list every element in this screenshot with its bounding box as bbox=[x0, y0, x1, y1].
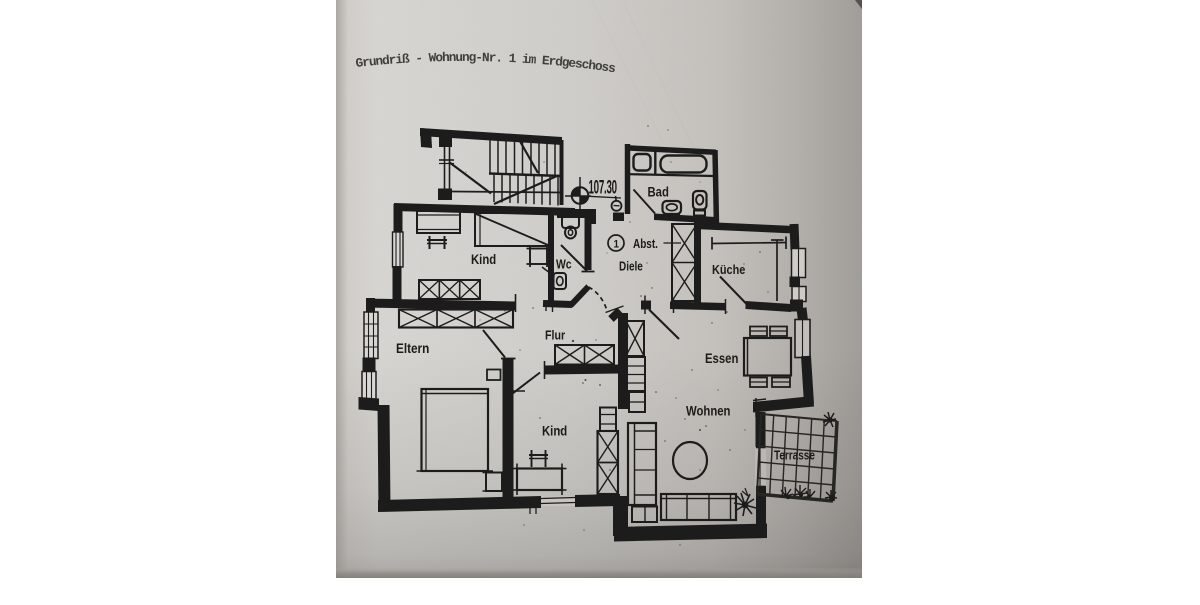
svg-text:Wc: Wc bbox=[556, 257, 572, 271]
svg-text:Eltern: Eltern bbox=[396, 340, 429, 356]
svg-text:Essen: Essen bbox=[705, 351, 738, 366]
svg-text:107.30: 107.30 bbox=[589, 177, 617, 199]
svg-text:Kind: Kind bbox=[471, 252, 496, 267]
svg-text:Terrasse: Terrasse bbox=[774, 450, 815, 463]
svg-text:Bad: Bad bbox=[648, 185, 669, 200]
svg-text:Abst.: Abst. bbox=[633, 238, 658, 251]
svg-text:1: 1 bbox=[614, 239, 620, 251]
svg-text:Diele: Diele bbox=[619, 261, 643, 274]
svg-text:Flur: Flur bbox=[545, 327, 565, 342]
svg-text:Küche: Küche bbox=[712, 262, 746, 277]
svg-text:Kind: Kind bbox=[542, 424, 567, 439]
svg-text:Wohnen: Wohnen bbox=[686, 404, 730, 419]
